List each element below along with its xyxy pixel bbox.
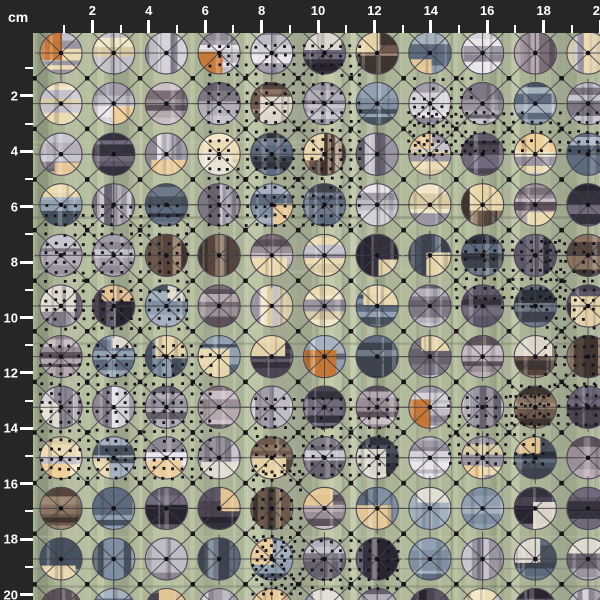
ruler-number: 16 [4, 476, 18, 491]
ruler-tick [373, 20, 376, 33]
ruler-tick [345, 25, 347, 33]
ruler-tick [458, 25, 460, 33]
ruler-number: 12 [4, 365, 18, 380]
ruler-corner: cm [0, 0, 33, 33]
ruler-number: 8 [258, 3, 265, 18]
ruler-tick [25, 178, 33, 180]
ruler-tick [176, 25, 178, 33]
ruler-number: 20 [4, 587, 18, 600]
ruler-number: 6 [202, 3, 209, 18]
ruler-tick [20, 94, 33, 97]
ruler-number: 18 [536, 3, 550, 18]
fabric-product-image: 2468101214161820 2468101214161820 cm [0, 0, 600, 600]
ruler-tick [542, 20, 545, 33]
ruler-number: 4 [145, 3, 152, 18]
ruler-tick [20, 482, 33, 485]
ruler-tick [25, 233, 33, 235]
ruler-unit-label: cm [8, 9, 28, 25]
ruler-tick [147, 20, 150, 33]
ruler-tick [25, 455, 33, 457]
ruler-number: 10 [311, 3, 325, 18]
ruler-number: 18 [4, 532, 18, 547]
fabric-swatch [33, 33, 600, 600]
ruler-top: 2468101214161820 [0, 0, 600, 33]
ruler-tick [120, 25, 122, 33]
ruler-number: 4 [11, 144, 18, 159]
ruler-number: 10 [4, 310, 18, 325]
ruler-number: 20 [593, 3, 600, 18]
ruler-tick [25, 123, 33, 125]
ruler-tick [289, 25, 291, 33]
ruler-tick [20, 316, 33, 319]
ruler-tick [486, 20, 489, 33]
ruler-number: 16 [480, 3, 494, 18]
ruler-number: 2 [89, 3, 96, 18]
ruler-number: 14 [4, 421, 18, 436]
ruler-tick [204, 20, 207, 33]
ruler-tick [63, 25, 65, 33]
ruler-tick [402, 25, 404, 33]
ruler-tick [571, 25, 573, 33]
ruler-tick [317, 20, 320, 33]
ruler-tick [20, 205, 33, 208]
ruler-tick [260, 20, 263, 33]
ruler-tick [514, 25, 516, 33]
ruler-tick [20, 593, 33, 596]
ruler-tick [25, 289, 33, 291]
ruler-tick [25, 67, 33, 69]
ruler-tick [25, 400, 33, 402]
ruler-tick [20, 427, 33, 430]
ruler-tick [25, 566, 33, 568]
ruler-tick [20, 538, 33, 541]
ruler-left: 2468101214161820 [0, 33, 33, 600]
ruler-tick [20, 261, 33, 264]
ruler-tick [20, 371, 33, 374]
ruler-tick [25, 344, 33, 346]
ruler-tick [232, 25, 234, 33]
ruler-number: 12 [367, 3, 381, 18]
ruler-number: 2 [11, 88, 18, 103]
ruler-number: 8 [11, 255, 18, 270]
ruler-tick [25, 510, 33, 512]
ruler-tick [91, 20, 94, 33]
ruler-number: 6 [11, 199, 18, 214]
ruler-tick [429, 20, 432, 33]
ruler-tick [20, 150, 33, 153]
ruler-number: 14 [424, 3, 438, 18]
